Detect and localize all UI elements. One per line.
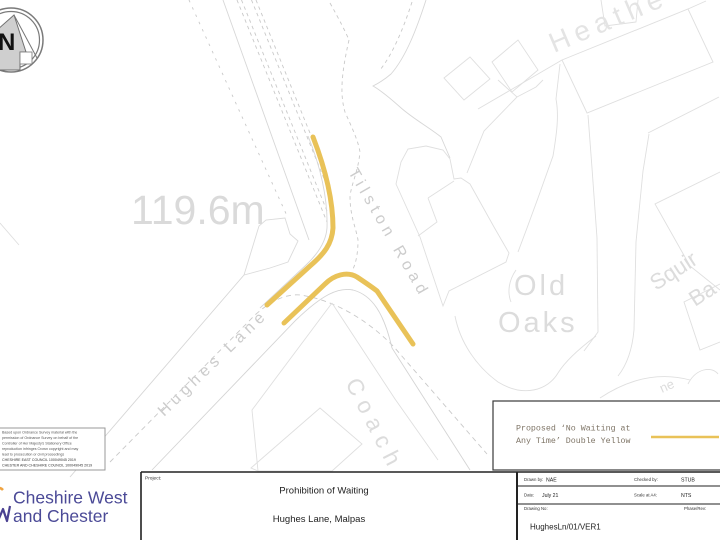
svg-text:reproduction infringes Crown c: reproduction infringes Crown copyright a… [2, 447, 79, 451]
svg-text:NTS: NTS [681, 493, 692, 499]
svg-text:Hughes Lane, Malpas: Hughes Lane, Malpas [273, 514, 366, 525]
svg-text:permission of Ordnance Survey: permission of Ordnance Survey on behalf … [2, 436, 78, 440]
svg-text:Controller of Her Majesty's St: Controller of Her Majesty's Stationery O… [2, 442, 72, 446]
svg-text:CHESTER AND CHESHIRE COUNCIL 1: CHESTER AND CHESHIRE COUNCIL 100049045 2… [2, 464, 92, 468]
svg-text:Any Time’ Double Yellow: Any Time’ Double Yellow [516, 436, 631, 446]
svg-text:Phase/Rev:: Phase/Rev: [684, 506, 706, 511]
svg-text:Checked by:: Checked by: [634, 477, 658, 482]
svg-text:CHESHIRE EAST COUNCIL 10004904: CHESHIRE EAST COUNCIL 100049045 2019 [2, 458, 76, 462]
svg-text:Scale at A4:: Scale at A4: [634, 493, 657, 498]
svg-text:and Chester: and Chester [13, 506, 109, 526]
svg-text:Cheshire West: Cheshire West [13, 488, 128, 508]
svg-text:Drawn by:: Drawn by: [524, 477, 543, 482]
svg-text:lead to prosecution or civil p: lead to prosecution or civil proceedings [2, 453, 64, 457]
svg-text:STUB: STUB [681, 477, 695, 483]
svg-text:Date:: Date: [524, 493, 534, 498]
svg-text:Oaks: Oaks [498, 307, 578, 339]
svg-text:Based upon Ordnance Survey mat: Based upon Ordnance Survey material with… [2, 431, 77, 435]
svg-text:Project:: Project: [145, 476, 161, 482]
svg-text:HughesLn/01/VER1: HughesLn/01/VER1 [530, 523, 601, 532]
svg-text:NAE: NAE [546, 477, 557, 483]
svg-text:July 21: July 21 [542, 493, 559, 499]
svg-text:Drawing No:: Drawing No: [524, 506, 548, 511]
svg-text:119.6m: 119.6m [131, 187, 265, 233]
svg-text:Proposed ‘No Waiting at: Proposed ‘No Waiting at [516, 424, 631, 434]
svg-text:Prohibition of Waiting: Prohibition of Waiting [279, 486, 368, 497]
svg-text:N: N [0, 29, 15, 56]
svg-text:Old: Old [514, 270, 568, 302]
